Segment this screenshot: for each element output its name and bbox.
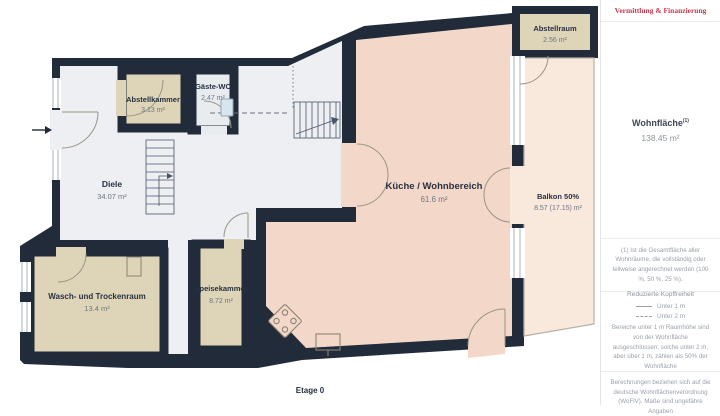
area-abstellkammer: 3.13 m² [141, 107, 165, 114]
window-kitchen-right-1 [510, 56, 525, 145]
disclaimer-text: Berechnungen beziehen sich auf die deuts… [610, 378, 711, 416]
legend-under-2m: Unter 2 m [636, 313, 685, 320]
living-area-label: Wohnfläche(1) [632, 118, 689, 128]
living-area-value: 138.45 m² [641, 133, 679, 143]
label-gaeste-wc: Gäste-WC [195, 82, 231, 91]
window-left-upper-1 [50, 78, 61, 108]
floor-label: Etage 0 [296, 386, 325, 395]
area-abstellraum: 2.56 m² [543, 37, 567, 44]
label-wasch: Wasch- und Trockenraum [48, 292, 146, 301]
info-sidebar: Vermittlung & Finanzierung Wohnfläche(1)… [600, 0, 720, 405]
footnote-section: (1) Ist die Gesamtfläche aller Wohnräume… [601, 238, 720, 291]
area-diele: 34.07 m² [97, 192, 127, 201]
label-speisekammer: Speisekammer [195, 284, 248, 293]
area-kueche: 61.6 m² [420, 195, 447, 204]
window-kitchen-right-2 [510, 228, 525, 278]
area-speisekammer: 8.72 m² [209, 298, 233, 305]
floorplan: Abstellkammer 3.13 m² Gäste-WC 2.47 m² D… [0, 0, 600, 405]
area-wasch: 13.4 m² [84, 304, 110, 313]
solid-line-icon [636, 306, 652, 307]
label-balkon: Balkon 50% [537, 192, 579, 201]
room-speisekammer [196, 244, 246, 350]
window-left-lower-2 [18, 302, 31, 332]
disclaimer-section: Berechnungen beziehen sich auf die deuts… [601, 371, 720, 405]
label-abstellraum: Abstellraum [533, 24, 577, 33]
area-gaeste-wc: 2.47 m² [201, 95, 225, 102]
dashed-line-icon [636, 316, 652, 317]
legend-under-1m: Unter 1 m [636, 303, 685, 310]
footnote-marker: (1) [683, 118, 689, 124]
label-diele: Diele [102, 179, 123, 189]
headroom-title: Reduzierte Kopffreiheit [627, 291, 694, 298]
headroom-note: Bereiche unter 1 m Raumhöhe sind von der… [610, 323, 711, 371]
headroom-section: Reduzierte Kopffreiheit Unter 1 m Unter … [601, 291, 720, 371]
window-left-upper-2 [50, 150, 61, 180]
label-abstellkammer: Abstellkammer [126, 95, 180, 104]
brand-title: Vermittlung & Finanzierung [601, 0, 720, 21]
entry-arrow-icon [32, 126, 52, 134]
label-kueche: Küche / Wohnbereich [386, 181, 483, 192]
living-area-section: Wohnfläche(1) 138.45 m² [601, 21, 720, 238]
floorplan-drawing: Abstellkammer 3.13 m² Gäste-WC 2.47 m² D… [0, 0, 600, 405]
footnote-text: (1) Ist die Gesamtfläche aller Wohnräume… [610, 246, 711, 284]
window-left-lower-1 [18, 262, 31, 292]
area-balkon: 8.57 (17.15) m² [534, 205, 583, 212]
